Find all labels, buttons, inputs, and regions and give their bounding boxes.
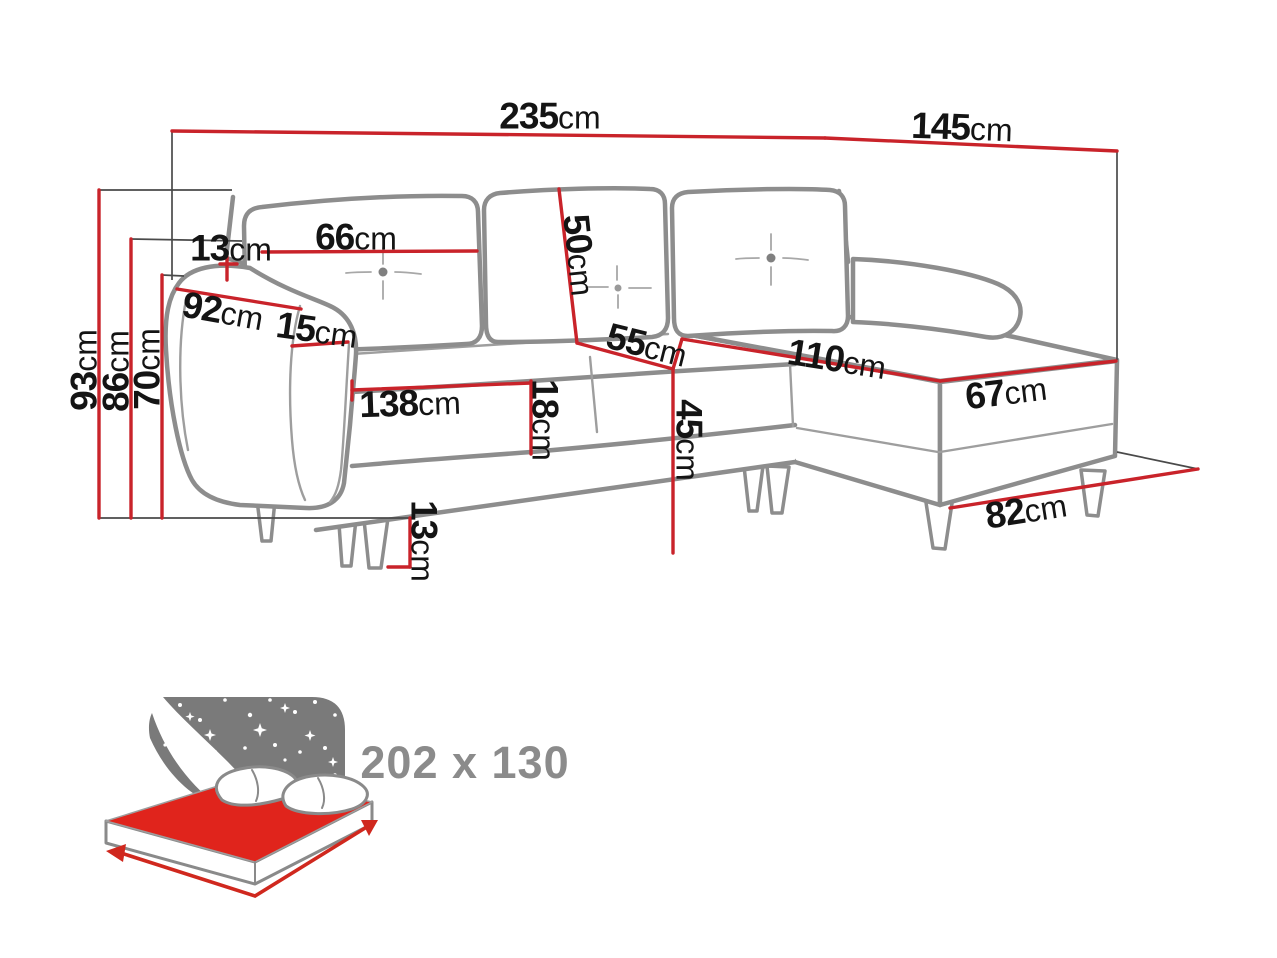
dim-seat-cushion-thickness: 18cm <box>527 379 564 461</box>
dim-back-cushion-height: 50cm <box>557 212 602 297</box>
sofa-leg <box>744 466 763 511</box>
sofa-leg <box>1081 470 1105 516</box>
sofa-dimensions-diagram: 235cm 145cm 93cm 86cm 70cm 13cm 66cm 50c… <box>0 0 1277 958</box>
dim-height-armrest: 70cm <box>129 328 166 410</box>
back-cushion-right <box>672 189 848 336</box>
sleeping-function-icon <box>106 697 378 896</box>
bed-icon <box>106 767 378 896</box>
dim-seat-height: 45cm <box>671 399 708 481</box>
dim-backrest-ledge: 13cm <box>190 230 272 267</box>
dim-total-depth: 145cm <box>911 107 1014 148</box>
dim-leg-height: 13cm <box>406 500 443 582</box>
dim-seat-width: 138cm <box>359 383 462 424</box>
diagram-canvas <box>0 0 1277 958</box>
sofa-leg <box>767 466 789 513</box>
pillow-right <box>283 775 367 814</box>
dim-back-cushion-width: 66cm <box>315 219 397 256</box>
dim-total-width: 235cm <box>499 98 600 135</box>
sleeping-area-size: 202 x 130 <box>360 737 569 789</box>
